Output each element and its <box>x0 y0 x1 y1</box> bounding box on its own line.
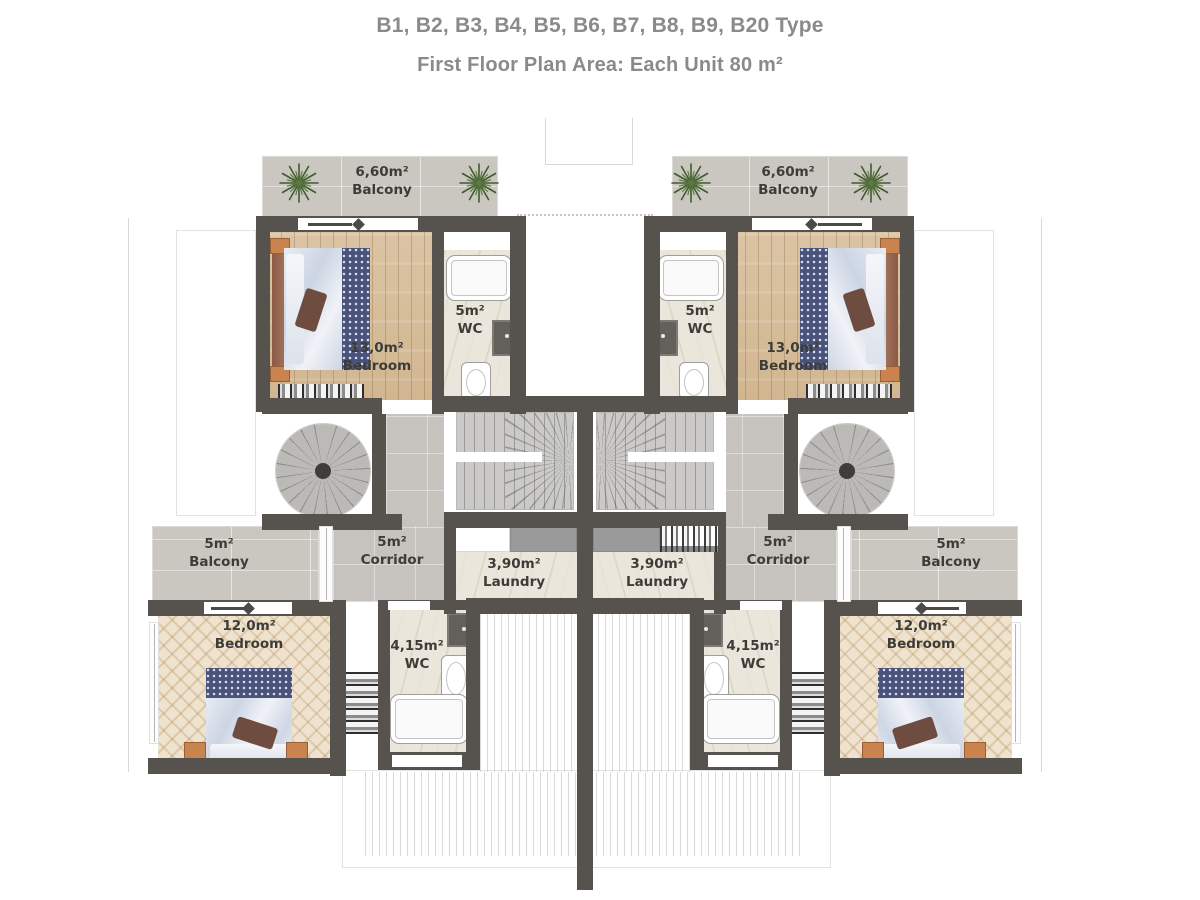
room-label-balcony-side-left: 5m²Balcony <box>189 536 249 571</box>
bathtub-icon <box>702 694 780 744</box>
plant-icon <box>670 162 712 204</box>
room-label-laundry-left: 3,90m²Laundry <box>483 556 545 591</box>
bathtub-icon <box>658 255 724 301</box>
wc-door-opening <box>740 601 782 610</box>
room-label-wc-top-right: 5m²WC <box>685 303 714 338</box>
wall <box>784 414 798 516</box>
wc-door-opening <box>696 234 726 249</box>
wall <box>824 600 840 776</box>
bedroom-window <box>1011 622 1021 744</box>
room-label-balcony-side-right: 5m²Balcony <box>921 536 981 571</box>
corridor-balcony-door <box>837 526 851 602</box>
plant-icon <box>850 162 892 204</box>
laundry-appliance <box>593 526 660 552</box>
room-label-balcony-top-left: 6,60m²Balcony <box>352 164 412 199</box>
wall <box>834 758 1022 774</box>
room-label-balcony-top-right: 6,60m²Balcony <box>758 164 818 199</box>
bed-headboard-icon <box>878 668 964 698</box>
sink-icon <box>701 613 723 647</box>
room-label-wc-bottom-left: 4,15m²WC <box>390 638 443 673</box>
room-label-corridor-left: 5m²Corridor <box>361 534 424 569</box>
sink-icon <box>658 320 678 356</box>
wall <box>780 600 792 760</box>
wall <box>593 598 704 614</box>
room-label-corridor-right: 5m²Corridor <box>747 534 810 569</box>
room-label-bedroom-top-right: 13,0m²Bedroom <box>759 340 827 375</box>
room-label-bedroom-top-left: 13,0m²Bedroom <box>343 340 411 375</box>
hall-floor <box>726 414 784 528</box>
party-wall <box>577 396 593 890</box>
balcony-door <box>752 218 872 230</box>
spiral-staircase <box>800 424 894 518</box>
balcony-door <box>878 602 966 614</box>
lower-terrace-outline <box>914 230 994 516</box>
room-label-wc-bottom-right: 4,15m²WC <box>726 638 779 673</box>
bedroom-door-opening <box>738 400 788 413</box>
wall <box>644 216 660 414</box>
room-label-wc-top-left: 5m²WC <box>455 303 484 338</box>
wall-niche <box>708 755 778 767</box>
room-label-laundry-right: 3,90m²Laundry <box>626 556 688 591</box>
floor-plan-page: B1, B2, B3, B4, B5, B6, B7, B8, B9, B20 … <box>0 0 1200 900</box>
toilet-icon <box>679 362 709 400</box>
wall <box>690 600 704 770</box>
room-label-bedroom-bottom-left: 12,0m²Bedroom <box>215 618 283 653</box>
wardrobe-icon <box>792 672 824 734</box>
wall <box>900 216 914 412</box>
bed-headboard-icon <box>886 252 898 368</box>
wall <box>726 232 738 414</box>
room-label-bedroom-bottom-right: 12,0m²Bedroom <box>887 618 955 653</box>
wall <box>788 398 908 414</box>
washing-machine-icon <box>660 526 718 552</box>
site-boundary-line <box>1041 218 1042 772</box>
terrace-strip <box>593 614 690 772</box>
staircase-landing-gap <box>628 452 714 462</box>
